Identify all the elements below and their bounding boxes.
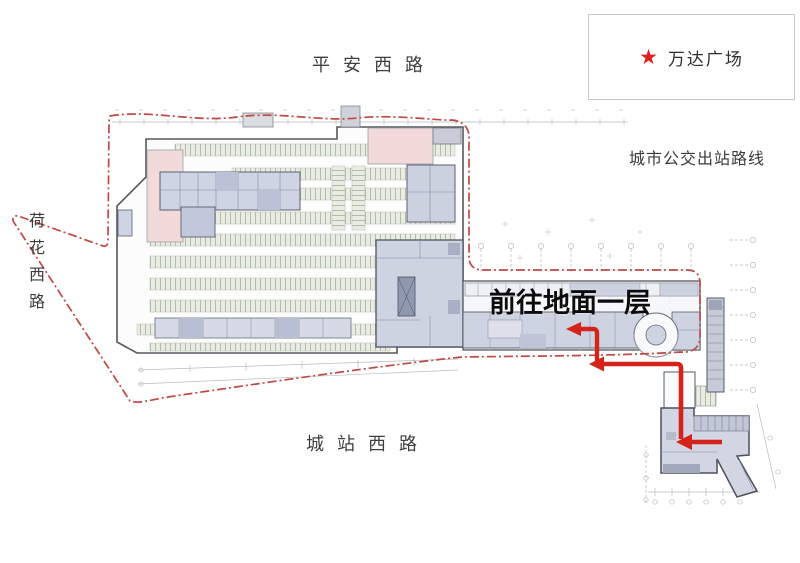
road-label-chengzhan-west: 城站西路 [306, 430, 430, 456]
road-label-hehua-west: 荷花西路 [22, 212, 46, 320]
legend-box: ★ 万达广场 [588, 14, 795, 100]
bus-station-building [661, 408, 757, 497]
route-title-bus-exit: 城市公交出站路线 [629, 145, 765, 169]
destination-label: 前往地面一层 [489, 281, 651, 320]
parking-garage [117, 106, 463, 353]
mall-core-block [376, 240, 463, 347]
road-label-pingan-west: 平安西路 [312, 51, 436, 77]
wayfinding-map: 平安西路 荷花西路 城站西路 城市公交出站路线 前往地面一层 ★ 万达广场 [0, 0, 800, 563]
star-icon: ★ [639, 47, 658, 68]
legend-label: 万达广场 [668, 45, 744, 70]
